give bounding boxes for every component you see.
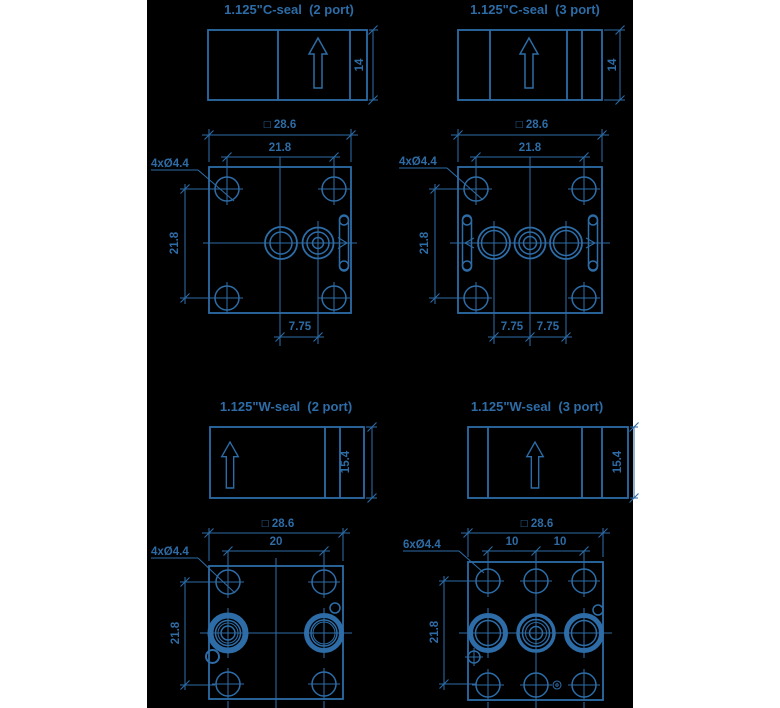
view-title: 1.125"C-seal (3 port) [470, 2, 600, 17]
dim-label: 14 [607, 58, 619, 71]
flow-arrow-icon [520, 38, 538, 88]
pin-hole-center [556, 684, 558, 686]
leader-label: 4xØ4.4 [151, 158, 189, 170]
dim-label: □ 28.6 [262, 518, 295, 530]
port-pitch-dimension: 7.75 [274, 261, 324, 344]
dim-label: 21.8 [429, 620, 441, 643]
dim-label: 21.8 [169, 231, 181, 254]
w3-front-view: □ 28.6 10 10 21.8 [403, 518, 612, 708]
holes-leader: 4xØ4.4 [151, 546, 235, 593]
holes-leader: 6xØ4.4 [403, 539, 484, 573]
c2-front-view: □ 28.6 21.8 21.8 4xØ4.4 [151, 119, 358, 346]
dim-label: 7.75 [501, 321, 524, 333]
dim-label: □ 28.6 [516, 119, 549, 131]
dim-label: 21.8 [519, 142, 542, 154]
view-title: 1.125"W-seal (3 port) [471, 399, 603, 414]
bolt-hole [568, 669, 600, 701]
technical-drawing: 1.125"C-seal (2 port) 14 [0, 0, 780, 708]
view-title: 1.125"C-seal (2 port) [224, 2, 354, 17]
flow-arrow-icon [527, 442, 544, 488]
leader-label: 4xØ4.4 [151, 546, 189, 558]
hole-pitch-h-dimension: 10 10 [482, 536, 590, 572]
view-c-seal-3-port: 1.125"C-seal (3 port) 14 [399, 2, 625, 346]
dim-label: 15.4 [340, 450, 352, 473]
dim-label: 15.4 [612, 450, 624, 473]
dim-label: 21.8 [419, 231, 431, 254]
c3-side-view: 14 [458, 26, 625, 105]
side-outline [468, 427, 628, 498]
leader-label: 4xØ4.4 [399, 156, 437, 168]
bolt-hole [520, 669, 552, 701]
bolt-hole [568, 282, 600, 314]
leader-label: 6xØ4.4 [403, 539, 441, 551]
bolt-hole [211, 282, 243, 314]
pin-hole [553, 681, 561, 689]
flow-arrow-icon [309, 38, 327, 88]
w2-front-view: □ 28.6 20 21.8 4xØ4.4 [151, 518, 352, 708]
thickness-dimension: 14 [604, 26, 625, 105]
dim-label: 10 [554, 536, 567, 548]
hole-pitch-v-dimension: 21.8 [169, 184, 214, 304]
bolt-hole [472, 669, 504, 701]
bolt-hole [212, 668, 244, 700]
pin-hole [206, 650, 219, 663]
pin-hole-dotted [553, 681, 561, 689]
w3-side-view: 15.4 [468, 423, 639, 503]
port-right [303, 221, 334, 265]
view-w-seal-2-port: 1.125"W-seal (2 port) 15.4 [151, 399, 377, 708]
holes-leader: 4xØ4.4 [151, 158, 234, 201]
w2-side-view: 15.4 [210, 423, 377, 503]
thickness-dimension: 15.4 [612, 423, 639, 503]
dim-label: 20 [270, 536, 283, 548]
bolt-hole [318, 282, 350, 314]
port-right [567, 608, 602, 658]
thickness-dimension: 15.4 [340, 423, 377, 503]
leader-line [198, 170, 234, 201]
view-title: 1.125"W-seal (2 port) [220, 399, 352, 414]
pin-hole [330, 603, 340, 613]
bolt-hole [460, 282, 492, 314]
dim-label: 21.8 [170, 621, 182, 644]
view-w-seal-3-port: 1.125"W-seal (3 port) 15.4 [403, 399, 639, 708]
side-outline [208, 30, 367, 100]
leader-line [198, 558, 235, 593]
dim-label: □ 28.6 [264, 119, 297, 131]
pin-hole [593, 605, 603, 615]
dim-label: 10 [506, 536, 519, 548]
dim-label: 21.8 [269, 142, 292, 154]
dim-label: 14 [354, 58, 366, 71]
outline-dimension: □ 28.6 [202, 119, 358, 162]
flow-arrow-icon [222, 442, 239, 488]
port-right [307, 608, 342, 658]
c2-side-view: 14 [208, 26, 378, 105]
c3-front-view: □ 28.6 21.8 21.8 4xØ4.4 [399, 119, 610, 346]
dim-label: □ 28.6 [521, 518, 554, 530]
thickness-dimension: 14 [354, 26, 378, 105]
dim-label: 7.75 [289, 321, 312, 333]
view-c-seal-2-port: 1.125"C-seal (2 port) 14 [151, 2, 378, 346]
bolt-hole [308, 668, 340, 700]
dim-label: 7.75 [537, 321, 560, 333]
